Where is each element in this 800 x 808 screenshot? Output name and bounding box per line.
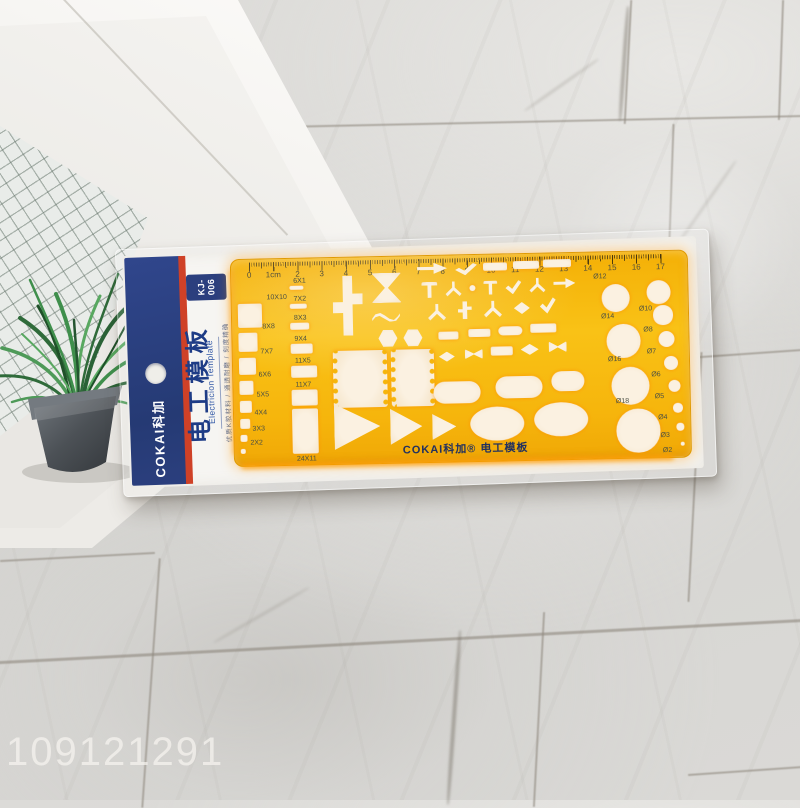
symbol-cutout-ybranch: [428, 304, 446, 322]
symbol-cutout-dot: [469, 285, 475, 291]
slot-label: 8X3: [294, 315, 307, 322]
symbol-cutout-angle: [540, 297, 556, 313]
symbol-cutout-diamond: [514, 302, 530, 314]
circle-cutout: [601, 283, 630, 312]
symbol-cutout-cross: [458, 301, 472, 319]
ruler-number: 1cm: [266, 270, 281, 279]
symbol-cutout-arrow: [553, 277, 575, 289]
square-cutout: [238, 303, 262, 327]
circle-cutout: [677, 423, 684, 430]
symbol-cutout-ybranch: [529, 278, 545, 294]
circle-cutout: [646, 280, 670, 304]
symbol-cutout-capsule: [551, 371, 584, 392]
symbol-cutout-bowtie: [371, 273, 402, 304]
circle-label: Ø2: [663, 447, 672, 454]
symbol-cutout-oval: [534, 402, 589, 437]
model-line2: 006: [206, 279, 217, 296]
symbol-cutout-bowtie2: [465, 349, 483, 359]
circle-label: Ø18: [616, 398, 629, 405]
circle-cutout: [658, 330, 675, 347]
ruler-ticks-cm: [249, 254, 663, 272]
symbol-cutout-coil: [391, 349, 435, 407]
symbol-cutout-tee: [421, 282, 437, 298]
square-cutout: [239, 381, 254, 396]
slot-label: 6X1: [293, 278, 306, 285]
square-label: 6X6: [259, 371, 272, 378]
symbol-cutout-diamond: [439, 351, 455, 361]
ruler-number: 3: [319, 269, 324, 278]
slot-label: 24X11: [297, 455, 317, 462]
slot-label: 11X7: [295, 381, 311, 388]
stencil-template: COKAI科加® 电工模板 01cm2345678910111213141516…: [230, 250, 692, 468]
circle-cutout: [606, 324, 640, 358]
circle-label: Ø5: [655, 393, 664, 400]
square-label: 7X7: [260, 348, 273, 355]
symbol-cutout-bar: [483, 262, 507, 271]
symbol-cutout-bar: [530, 323, 556, 333]
symbol-cutout-tri: [334, 403, 381, 450]
circle-label: Ø10: [639, 305, 652, 312]
circle-cutout: [668, 380, 680, 392]
symbol-cutout-oval: [470, 406, 525, 441]
circle-label: Ø12: [593, 273, 606, 280]
circle-cutout: [664, 356, 679, 371]
tile-grout-line: [778, 0, 784, 120]
slot-cutout: [292, 389, 318, 406]
square-label: 5X5: [257, 391, 270, 398]
marble-vein: [213, 586, 310, 644]
circle-label: Ø3: [660, 432, 669, 439]
circle-label: Ø4: [658, 414, 667, 421]
symbol-cutout-coil: [333, 350, 388, 408]
symbol-cutout-ybranch: [445, 281, 461, 297]
circle-cutout: [680, 441, 685, 446]
square-label: 8X8: [262, 323, 275, 330]
square-label: 4X4: [255, 409, 268, 416]
tile-grout-line: [688, 766, 800, 776]
symbol-cutout-bar: [513, 261, 539, 270]
circle-cutout: [673, 403, 683, 413]
stencil-brand-print: COKAI科加® 电工模板: [403, 439, 529, 458]
packaging-card: COKAI科加 KJ- 006 电工模板 Electricion Templat…: [122, 236, 704, 488]
slot-cutout: [291, 343, 313, 353]
slot-label: 9X4: [294, 336, 307, 343]
tile-grout-line: [0, 619, 800, 664]
square-cutout: [240, 435, 247, 442]
ruler-number: 14: [583, 264, 592, 273]
slot-cutout: [290, 322, 309, 329]
circle-label: Ø7: [647, 349, 656, 356]
symbol-cutout-hex: [403, 329, 422, 346]
slot-cutout: [292, 408, 319, 454]
product-photo: { "watermark": "109121291", "package": {…: [0, 0, 800, 800]
symbol-cutout-wave: [372, 311, 400, 323]
square-cutout: [240, 419, 250, 429]
circle-label: Ø16: [608, 356, 621, 363]
square-cutout: [238, 333, 258, 353]
tile-grout-line: [533, 612, 545, 807]
square-label: 2X2: [250, 439, 263, 446]
symbol-cutout-tri: [432, 413, 457, 439]
square-label: 10X10: [267, 294, 287, 301]
model-badge: KJ- 006: [186, 273, 227, 300]
slot-cutout: [289, 286, 303, 290]
ruler-number: 15: [607, 263, 616, 272]
watermark-number: 109121291: [6, 730, 224, 775]
symbol-cutout-ybranch: [484, 300, 502, 318]
circle-label: Ø14: [601, 313, 614, 320]
symbol-cutout-capsule: [498, 326, 522, 336]
marble-vein: [446, 630, 462, 805]
product-package: COKAI科加 KJ- 006 电工模板 Electricion Templat…: [122, 236, 704, 488]
slot-label: 7X2: [294, 296, 307, 303]
model-line1: KJ-: [196, 279, 207, 295]
circle-label: Ø6: [651, 371, 660, 378]
symbol-cutout-bar: [491, 346, 513, 355]
ruler-number: 16: [632, 263, 641, 272]
slot-label: 11X5: [295, 357, 311, 364]
brand-logo-text: COKAI科加: [147, 378, 170, 499]
symbol-cutout-bowtie2: [549, 341, 567, 352]
slot-cutout: [290, 304, 307, 309]
slot-cutout: [291, 365, 317, 378]
symbol-cutout-bar: [438, 331, 458, 339]
symbol-cutout-diamond: [521, 344, 539, 355]
symbol-cutout-tri: [390, 408, 423, 445]
circle-cutout: [653, 305, 673, 325]
symbol-cutout-tee: [483, 281, 497, 295]
symbol-cutout-capsule: [495, 376, 542, 399]
square-label: 3X3: [252, 425, 265, 432]
symbol-cutout-bar: [468, 329, 490, 337]
tile-grout-line: [0, 552, 155, 562]
symbol-cutout-capsule: [433, 381, 480, 404]
symbol-cutout-cross: [332, 275, 363, 336]
marble-vein: [524, 58, 599, 112]
symbol-cutout-hex: [378, 330, 397, 347]
symbol-cutout-bar: [543, 259, 571, 268]
ruler-number: 17: [656, 262, 665, 271]
square-cutout: [241, 449, 246, 454]
circle-cutout: [616, 409, 660, 453]
ruler-number: 5: [368, 268, 373, 277]
circle-label: Ø8: [643, 326, 652, 333]
symbol-cutout-angle: [505, 280, 521, 294]
ruler-number: 0: [247, 271, 252, 280]
square-cutout: [240, 401, 252, 413]
square-cutout: [239, 358, 256, 375]
tile-grout-line: [230, 115, 800, 129]
